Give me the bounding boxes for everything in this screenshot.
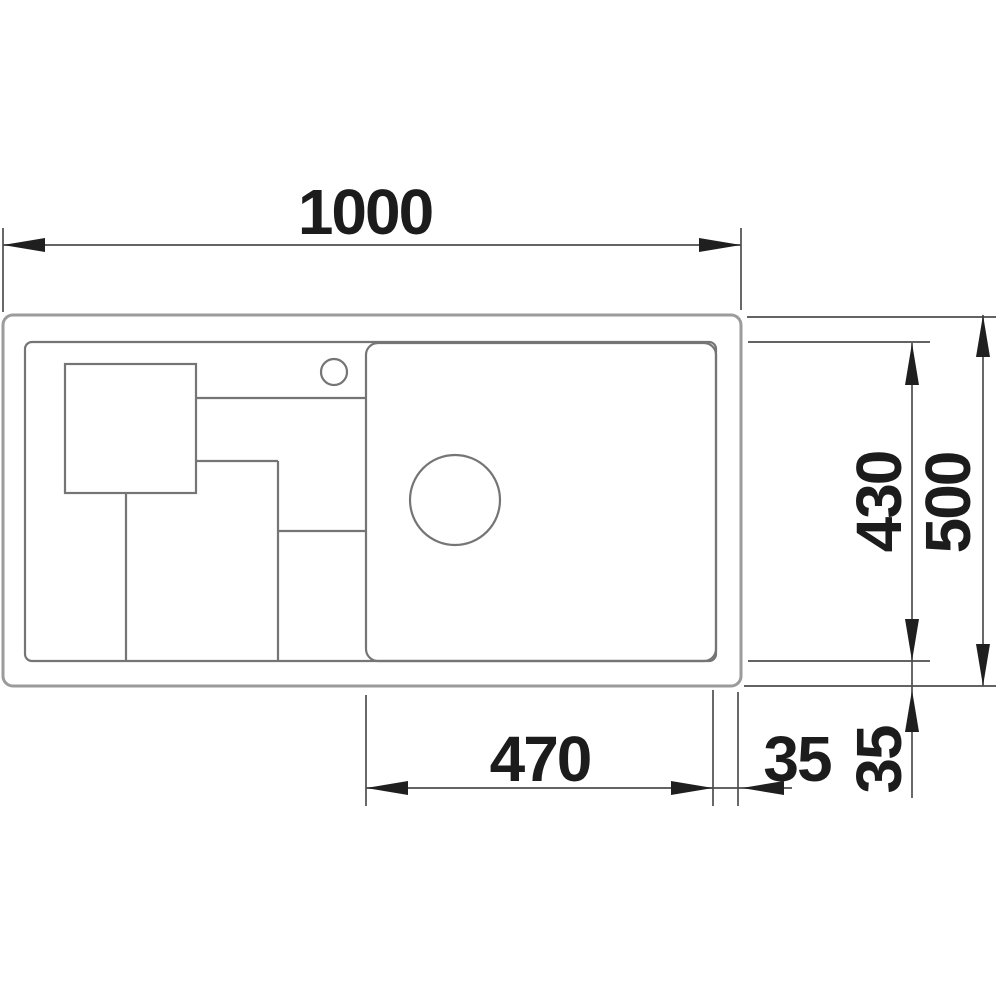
dimension-label-inner-depth: 430 (843, 452, 915, 553)
sink-inner-rim (25, 342, 716, 661)
arrowhead-up-icon (905, 690, 919, 732)
dimension-label-rim-side: 35 (763, 723, 831, 795)
arrowhead-up-icon (905, 343, 919, 385)
dimension-rim-front: 35 (843, 690, 919, 794)
dimension-label-overall-width: 1000 (298, 176, 432, 248)
dimension-label-bowl-width: 470 (490, 723, 591, 795)
dimension-overall-width: 1000 (3, 176, 741, 312)
drain-hole (410, 455, 500, 545)
sink-body (3, 315, 741, 686)
tap-hole (321, 359, 347, 385)
dimension-rim-side: 35 (738, 692, 831, 806)
sink-outer-outline (3, 315, 741, 686)
arrowhead-up-icon (976, 315, 990, 357)
dimension-label-overall-depth: 500 (912, 453, 984, 554)
dimension-label-rim-front: 35 (843, 726, 915, 794)
sink-spec-drawing: 1000 430 500 35 (0, 0, 1000, 1000)
arrowhead-left-icon (3, 238, 45, 252)
arrowhead-down-icon (905, 619, 919, 661)
drainboard-square (65, 364, 196, 493)
arrowhead-left-icon (366, 781, 408, 795)
arrowhead-right-icon (699, 238, 741, 252)
drainboard-pattern (65, 364, 366, 661)
technical-drawing-canvas: 1000 430 500 35 (0, 0, 1000, 1000)
arrowhead-down-icon (976, 644, 990, 686)
bowl-outline (366, 343, 716, 661)
arrowhead-right-icon (671, 781, 713, 795)
dimension-bowl-width: 470 (366, 690, 792, 806)
